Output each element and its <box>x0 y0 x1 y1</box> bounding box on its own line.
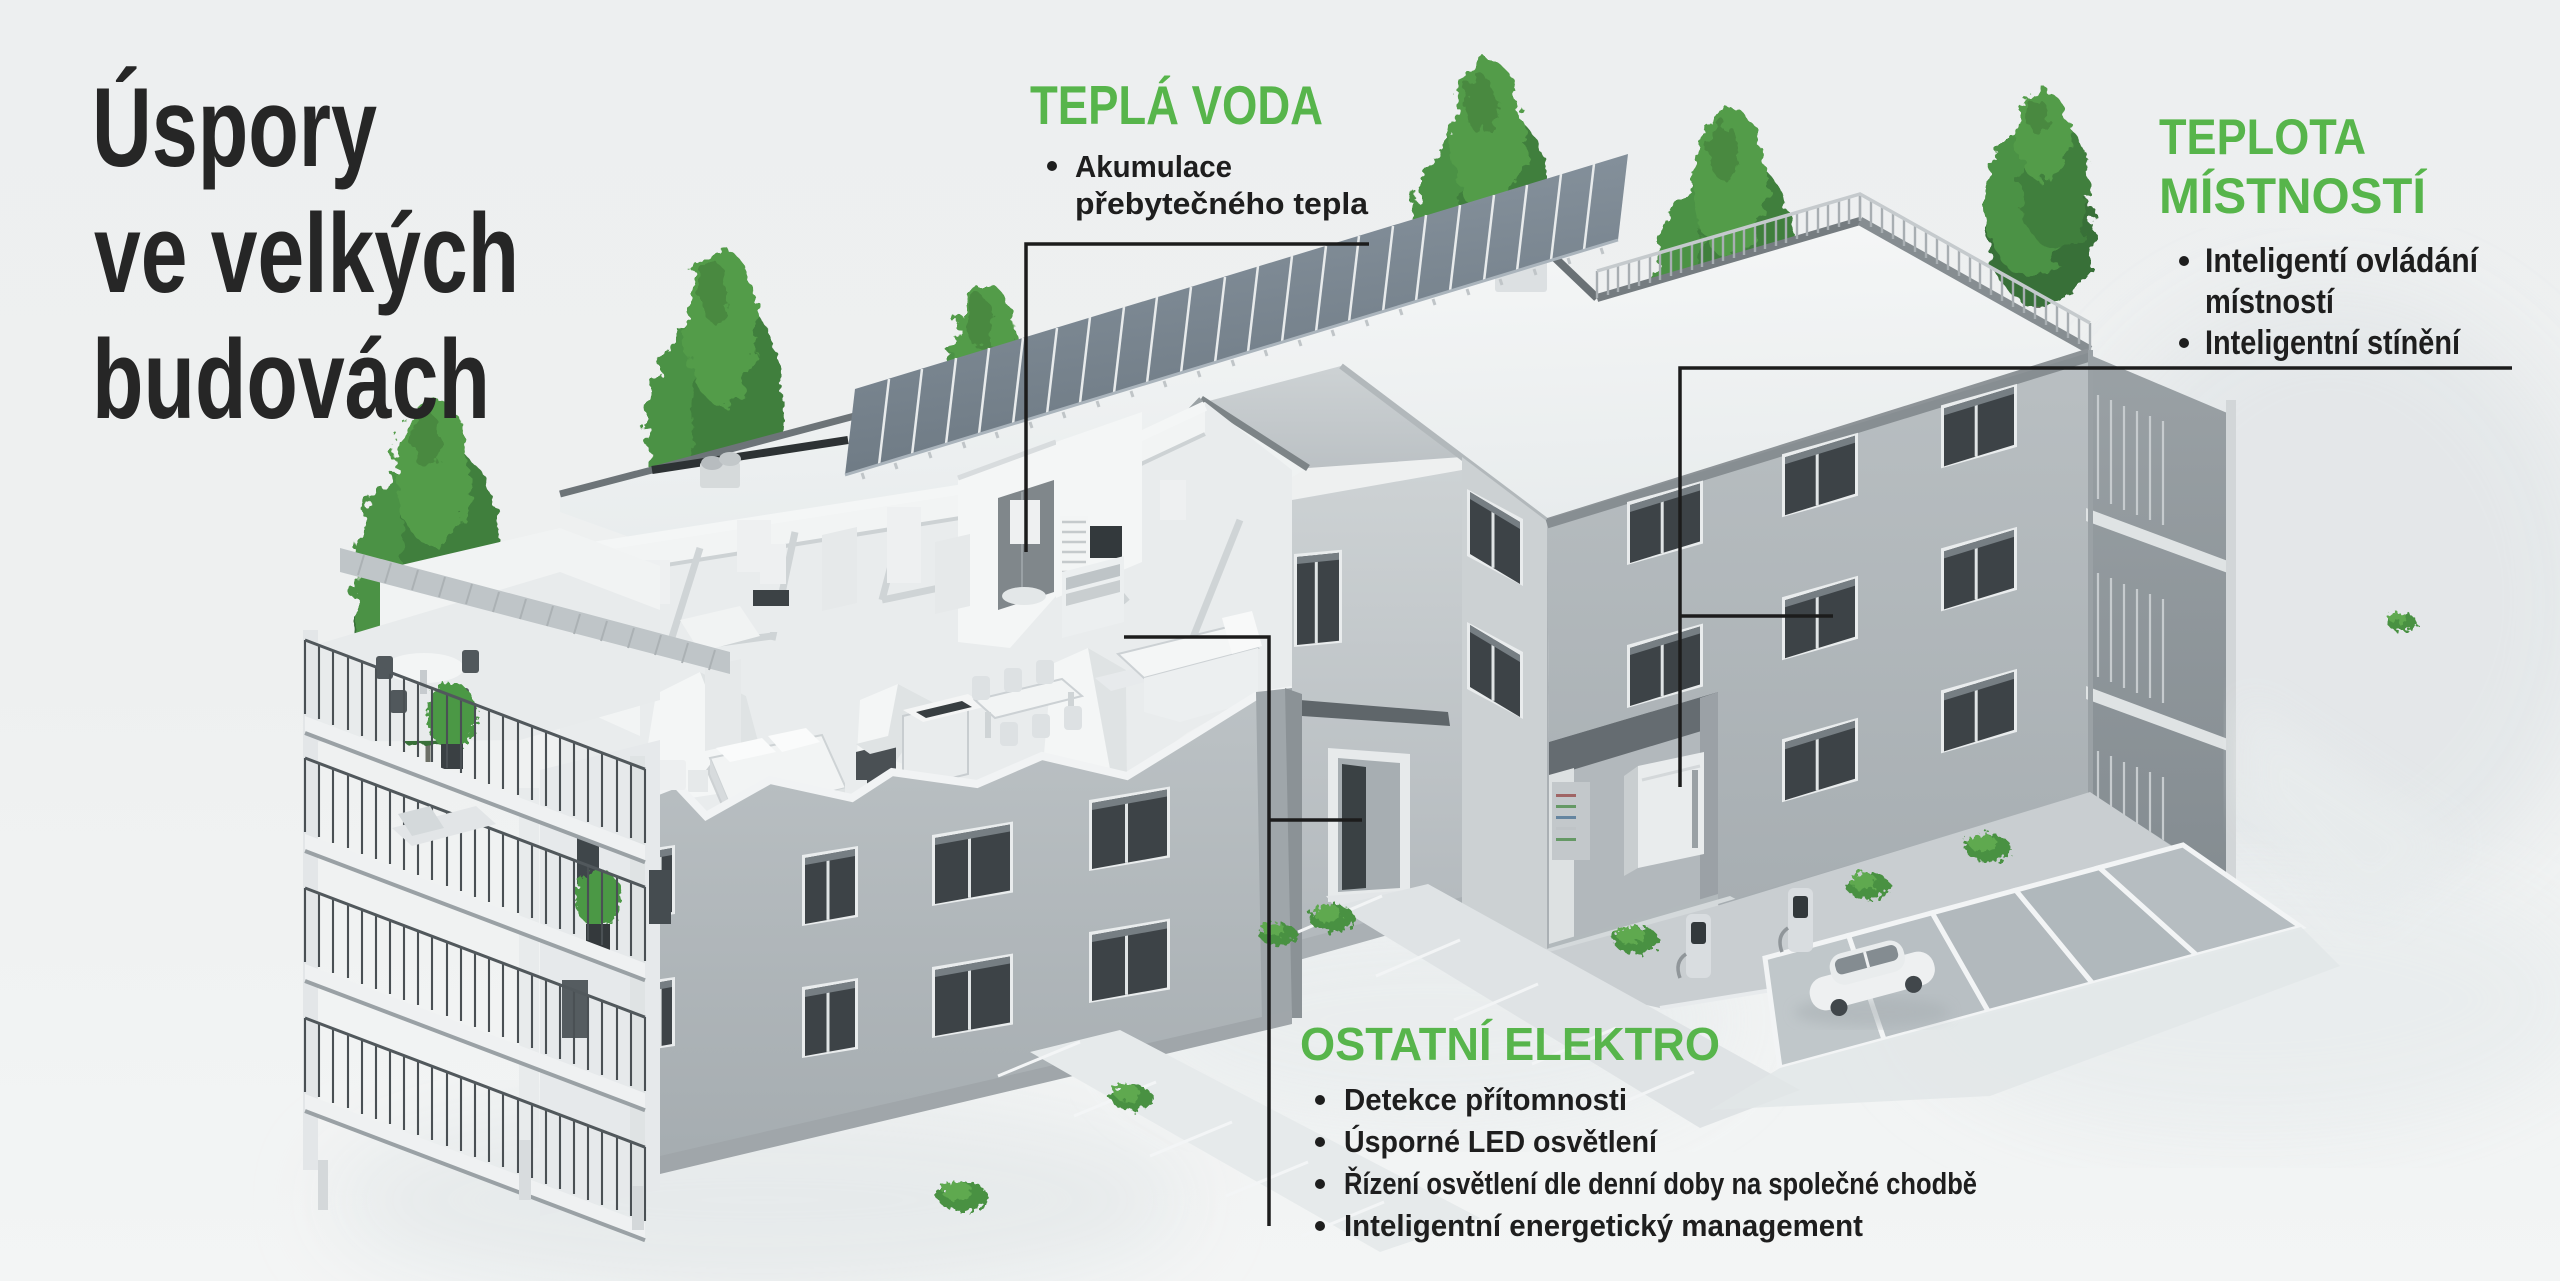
svg-text:TEPLOTA: TEPLOTA <box>2159 109 2366 165</box>
svg-text:TEPLÁ VODA: TEPLÁ VODA <box>1030 74 1323 136</box>
svg-text:Úspory: Úspory <box>92 65 377 190</box>
svg-text:Inteligentní energetický manag: Inteligentní energetický management <box>1344 1208 1863 1243</box>
svg-text:přebytečného tepla: přebytečného tepla <box>1075 186 1369 221</box>
svg-text:místností: místností <box>2205 283 2335 321</box>
svg-text:budovách: budovách <box>92 317 490 442</box>
svg-text:OSTATNÍ ELEKTRO: OSTATNÍ ELEKTRO <box>1300 1018 1720 1070</box>
svg-text:Řízení osvětlení dle denní dob: Řízení osvětlení dle denní doby na spole… <box>1344 1165 1977 1201</box>
svg-text:Akumulace: Akumulace <box>1075 149 1232 184</box>
svg-text:Detekce přítomnosti: Detekce přítomnosti <box>1344 1082 1627 1117</box>
svg-text:MÍSTNOSTÍ: MÍSTNOSTÍ <box>2159 168 2427 224</box>
svg-text:Úsporné LED osvětlení: Úsporné LED osvětlení <box>1344 1123 1658 1159</box>
svg-text:Inteligentní stínění: Inteligentní stínění <box>2205 324 2461 362</box>
svg-text:Inteligentí ovládání: Inteligentí ovládání <box>2205 242 2479 280</box>
svg-text:ve velkých: ve velkých <box>94 191 519 316</box>
